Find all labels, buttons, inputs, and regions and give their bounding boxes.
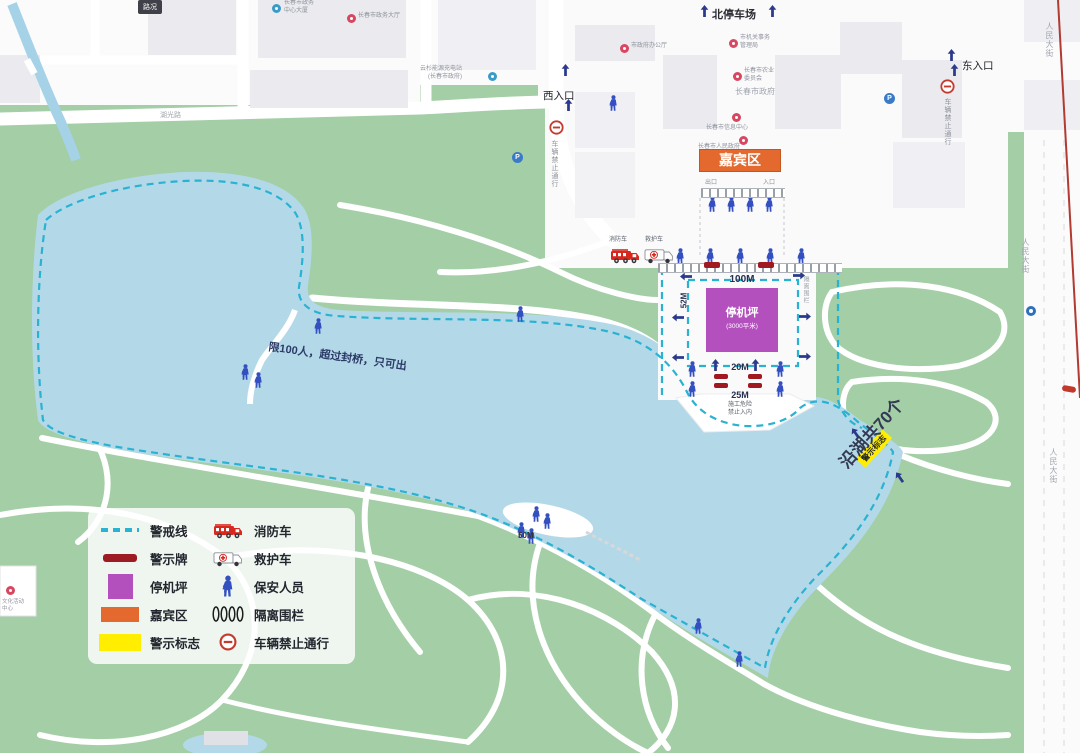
legend-item-ambulance: 救护车 — [210, 544, 345, 572]
legend-label: 隔离围栏 — [254, 605, 304, 624]
no-entry-icon — [210, 633, 246, 651]
poi-label: 中心 — [2, 604, 13, 612]
charging-station-icon — [488, 72, 497, 81]
poi-pin — [739, 136, 748, 145]
guest-area-banner: 嘉宾区 — [700, 150, 780, 171]
distance-25m: 25M — [724, 390, 756, 400]
no-vehicle-text-west: 车辆禁止通行 — [550, 140, 558, 188]
legend-label: 嘉宾区 — [150, 605, 188, 624]
traffic-chip[interactable]: 路况 — [138, 0, 162, 14]
legend-item-guard: 保安人员 — [210, 572, 345, 600]
east-entrance-label: 东入口 — [962, 58, 994, 73]
legend-label: 警示标志 — [150, 633, 200, 652]
warning-sign — [714, 383, 728, 388]
poi-label: 市政府办公厅 — [631, 43, 667, 50]
legend-item-warning-mark: 警示标志 — [98, 628, 210, 656]
parking-icon: P — [512, 152, 523, 163]
legend-item-helipad: 停机坪 — [98, 572, 210, 600]
ambulance-icon — [210, 548, 246, 568]
poi-label: 中心大厦 — [284, 8, 308, 15]
warning-sign — [748, 383, 762, 388]
distance-100m: 100M — [712, 274, 772, 285]
gate-barrier — [701, 188, 785, 198]
distance-52m: 52M — [680, 289, 689, 313]
poi-label: 委员会 — [744, 76, 762, 83]
legend-item-fence: 隔离围栏 — [210, 600, 345, 628]
fire-truck-label: 消防车 — [609, 237, 627, 244]
legend-item-warning-sign: 警示牌 — [98, 544, 210, 572]
north-parking-label: 北停车场 — [712, 6, 756, 22]
poi-label: 长春市农业 — [744, 68, 774, 75]
poi-label: 长春市信息中心 — [706, 125, 748, 132]
poi-pin — [620, 44, 629, 53]
distance-50m: 50M — [518, 531, 534, 540]
security-map: 路况 北停车场 西入口 东入口 车辆禁止通行 车辆禁止通行 长春市政务 中心大厦… — [0, 0, 1080, 753]
helipad-swatch — [98, 574, 142, 599]
isolation-fence-icon — [210, 605, 246, 623]
gov-area-label: 长春市政府 — [735, 87, 775, 96]
legend-label: 消防车 — [254, 521, 292, 540]
legend-label: 停机坪 — [150, 577, 188, 596]
gate-exit-label: 出口 — [705, 180, 717, 187]
poi-label: 云杉能源充电站 — [420, 66, 462, 73]
legend-label: 警示牌 — [150, 549, 188, 568]
legend-label: 车辆禁止通行 — [254, 633, 329, 652]
warning-sign — [748, 374, 762, 379]
legend-item-no-vehicles: 车辆禁止通行 — [210, 628, 345, 656]
legend-item-cordon: 警戒线 — [98, 516, 210, 544]
no-vehicle-text-east: 车辆禁止通行 — [943, 98, 951, 146]
warning-sign — [704, 262, 720, 268]
road-label-renmin: 人民大街 — [1048, 448, 1059, 484]
warning-sign — [758, 262, 774, 268]
helipad-name: 停机坪 — [706, 304, 778, 320]
road-label-renmin: 人民大街 — [1020, 238, 1031, 274]
poi-label: 市机关事务 — [740, 35, 770, 42]
parking-icon: P — [884, 93, 895, 104]
poi-label: 管理局 — [740, 43, 758, 50]
legend-label: 警戒线 — [150, 521, 188, 540]
poi-label: (长春市政府) — [428, 74, 462, 81]
metro-station-icon — [1026, 306, 1036, 316]
legend-label: 保安人员 — [254, 577, 304, 596]
isolation-fence-note: 隔离围栏 — [801, 276, 810, 304]
west-entrance-label: 西入口 — [543, 88, 575, 103]
road-label-huguang: 湖光路 — [160, 110, 181, 120]
poi-label: 长春市政务大厅 — [358, 13, 400, 20]
poi-pin — [272, 4, 281, 13]
warning-mark-swatch — [98, 634, 142, 651]
legend: 警戒线 消防车 警示牌 救护车 停机坪 保安人员 嘉宾区 — [88, 508, 355, 664]
poi-pin — [729, 39, 738, 48]
poi-pin — [732, 113, 741, 122]
warning-sign-swatch — [98, 554, 142, 562]
no-entry-icon — [550, 121, 562, 133]
road-label-renmin: 人民大街 — [1044, 22, 1055, 58]
construction-warning: 禁止入内 — [718, 410, 762, 417]
poi-label: 长春市政务 — [284, 0, 314, 7]
gate-entry-label: 入口 — [763, 180, 775, 187]
cordon-line-swatch — [98, 528, 142, 532]
legend-label: 救护车 — [254, 549, 292, 568]
fire-truck-icon — [210, 520, 246, 540]
legend-item-guest-area: 嘉宾区 — [98, 600, 210, 628]
poi-pin — [6, 586, 15, 595]
distance-20m: 20M — [724, 362, 756, 372]
construction-warning: 施工危险 — [718, 402, 762, 409]
legend-item-fire-truck: 消防车 — [210, 516, 345, 544]
no-entry-icon — [941, 80, 953, 92]
barrier-fence — [658, 263, 842, 273]
poi-pin — [733, 72, 742, 81]
security-guard-icon — [210, 575, 246, 597]
warning-sign — [714, 374, 728, 379]
ambulance-label: 救护车 — [645, 237, 663, 244]
poi-pin — [347, 14, 356, 23]
helipad-area: (3000平米) — [706, 320, 778, 330]
helipad: 停机坪 (3000平米) — [706, 288, 778, 352]
guest-area-swatch — [98, 607, 142, 622]
